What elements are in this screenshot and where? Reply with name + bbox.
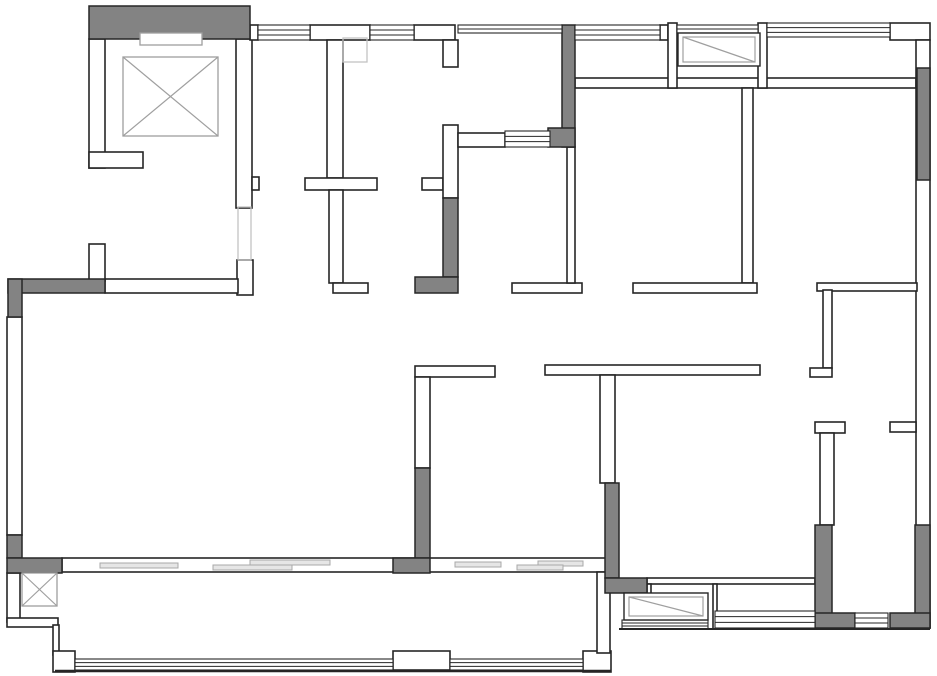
column-mid-right-foot <box>605 578 647 593</box>
column-br-foot-right <box>890 613 930 628</box>
window-balcony-right <box>450 659 583 670</box>
bath-wall-left <box>443 125 458 198</box>
midroom-wall-right <box>600 375 615 483</box>
entry-wall-cross <box>305 178 377 190</box>
bath-wall-horizontal <box>458 133 505 147</box>
kitchen-stub <box>422 178 443 190</box>
window-bay-right <box>715 611 815 628</box>
bath-stub-top <box>443 40 458 67</box>
window-top-3 <box>575 25 660 40</box>
entry-wall-vertical-upper <box>327 40 343 178</box>
bedroom-bottom-wall-left <box>633 283 757 293</box>
bedroom-top-wall <box>575 78 916 88</box>
elevator-wall-foot-left <box>89 152 143 168</box>
column-bath-corner <box>548 128 575 147</box>
closet-wall-foot <box>810 368 832 377</box>
br-balcony-wall-left <box>820 433 834 525</box>
top-right-pier <box>890 23 930 40</box>
column-bath-foot <box>415 277 458 293</box>
balcony-bottom-pier <box>393 651 450 670</box>
wall-stub-left <box>89 244 105 281</box>
hall-wall-horizontal <box>105 279 238 293</box>
bl-balcony-wall-left <box>7 573 20 622</box>
column-mid-left-foot <box>393 558 430 573</box>
closet-wall-vertical <box>823 290 832 368</box>
column-br-foot-left <box>815 613 855 628</box>
midroom-stub-right <box>545 365 760 375</box>
top-pier-c <box>414 25 455 40</box>
midroom-wall-left <box>415 377 430 468</box>
elevator-wall-left <box>89 39 105 168</box>
column-mid-right <box>605 483 619 578</box>
bedroom-divider-wall <box>742 88 753 283</box>
bl-balcony-corner <box>53 651 75 672</box>
window-ac-bottom <box>622 620 708 629</box>
bl-balcony-step <box>7 618 58 627</box>
dining-thin-wall <box>647 578 815 584</box>
window-top-4 <box>767 23 890 37</box>
hall-wall-bump <box>252 177 259 190</box>
sliding-panel-1 <box>100 563 178 568</box>
column-bath-left <box>443 198 458 277</box>
sliding-panel-4 <box>455 562 501 567</box>
elevator-wall-right <box>236 39 252 208</box>
column-mid-left <box>415 468 430 558</box>
br-balcony-bracket-left <box>815 422 845 433</box>
sliding-panel-6 <box>517 565 563 570</box>
br-balcony-bracket-right <box>890 422 916 432</box>
hallway-wall-horizontal <box>512 283 582 293</box>
sliding-panel-2 <box>250 560 330 565</box>
top-pier-d <box>660 25 668 40</box>
column-left-vertical <box>8 279 22 317</box>
window-bathroom <box>505 131 550 147</box>
floor-plan-svg <box>0 0 937 676</box>
window-br-balcony <box>855 613 888 628</box>
exterior-wall-left <box>7 317 22 535</box>
entry-wall-vertical-lower <box>329 190 343 283</box>
entry-wall-foot <box>333 283 368 293</box>
sliding-panel-3 <box>213 565 292 570</box>
column-bl-vertical <box>7 535 22 558</box>
top-pier-a <box>250 25 258 40</box>
balcony-corner-right <box>583 651 611 672</box>
floor-plan <box>0 0 937 676</box>
window-top-2 <box>370 25 414 40</box>
window-top-1 <box>258 25 310 40</box>
elevator-counterweight <box>140 33 202 45</box>
midroom-stub-left <box>415 366 495 377</box>
door-opening-hall <box>238 207 251 260</box>
window-balcony-left <box>75 659 393 670</box>
ac-cell-wall-left <box>668 23 677 88</box>
hall-wall-lower <box>237 260 253 295</box>
column-right-top <box>917 68 930 180</box>
bath-wall-thin-vertical <box>567 147 575 283</box>
duct-square <box>343 38 367 62</box>
column-bl-foot <box>7 558 62 573</box>
